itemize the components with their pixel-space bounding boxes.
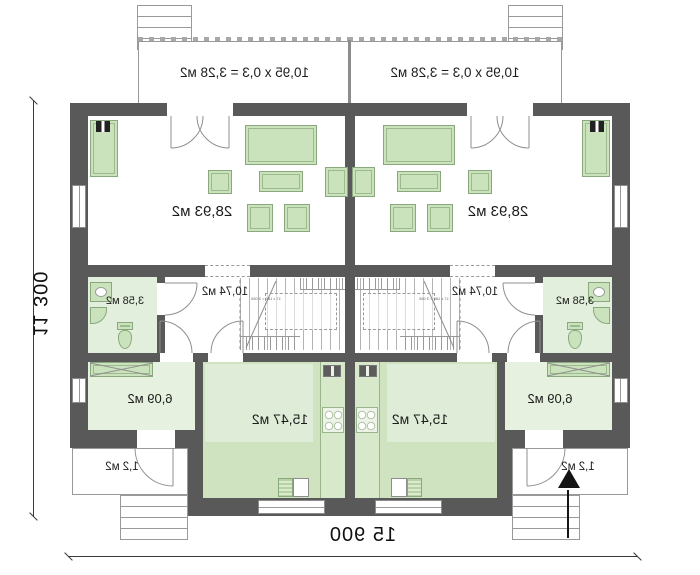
terrace-door-opening: [167, 103, 233, 116]
unit-right: 10,95 x 0,3 = 3,28 м2: [347, 0, 630, 575]
kitchen-door-opening: [457, 353, 492, 362]
kitchen-label: 15,47 м2: [215, 411, 345, 427]
unit-left: 10,95 x 0,3 = 3,28 м2: [70, 0, 353, 575]
entry-arrow-line: [567, 490, 569, 538]
porch-label: 1,2 м2: [538, 461, 618, 473]
sink-symbol: [323, 365, 341, 377]
terrace: 10,95 x 0,3 = 3,28 м2: [349, 42, 562, 103]
fridge-symbol: [391, 478, 407, 497]
bathroom-label: 3,58 м2: [90, 295, 160, 307]
bathroom-label: 3,58 м2: [540, 295, 610, 307]
terrace-divider: [348, 40, 351, 103]
riser-row: [300, 278, 345, 290]
sofa-symbol: [383, 125, 455, 165]
terrace: 10,95 x 0,3 = 3,28 м2: [138, 42, 351, 103]
sofa-symbol: [245, 125, 317, 165]
kitchen-label: 15,47 м2: [355, 411, 485, 427]
dimension-line: [68, 556, 637, 557]
fridge-symbol: [293, 478, 309, 497]
porch-door-opening: [525, 430, 563, 448]
window-living: [614, 185, 628, 228]
entry-steps-symbol: [120, 495, 188, 540]
opening-living-hall: [450, 265, 495, 277]
wardrobe-symbol: [547, 362, 610, 377]
terrace-door-opening: [467, 103, 533, 116]
floor-plan: 10,95 x 0,3 = 3,28 м2: [0, 0, 700, 575]
porch-door-opening: [137, 430, 175, 448]
wall-bottom-room: [497, 430, 630, 448]
armchair-symbol: [208, 170, 232, 194]
armchair-symbol: [352, 167, 375, 197]
porch-label: 1,2 м2: [82, 461, 162, 473]
room-label: 6,09 м2: [505, 391, 595, 406]
riser-row: [355, 278, 400, 290]
kitchen-floor-inner: [387, 364, 495, 442]
window-living: [72, 185, 86, 228]
wall-party: [348, 103, 355, 516]
pouf-symbol: [390, 204, 416, 232]
toilet-tank-symbol: [567, 322, 583, 330]
tv-symbol: [96, 121, 110, 132]
toilet-tank-symbol: [117, 322, 133, 330]
wall-kitchen-west: [497, 448, 512, 498]
wall-kitchen-west: [188, 448, 203, 498]
kitchen-floor-inner: [205, 364, 313, 442]
coffee-table-symbol: [397, 171, 441, 192]
window-kitchen: [375, 500, 442, 514]
stairs-note: 17 x 180 = 3 060: [412, 296, 456, 301]
living-label: 28,93 м2: [147, 203, 257, 220]
room-door-opening: [160, 353, 193, 362]
entry-steps-symbol: [512, 495, 580, 540]
cabinet-symbol: [407, 478, 422, 497]
opening-living-hall: [205, 265, 250, 277]
window-room: [72, 378, 86, 403]
stairs-note: 17 x 180 = 3 060: [244, 296, 288, 301]
terrace-label: 10,95 x 0,3 = 3,28 м2: [391, 65, 520, 80]
tv-symbol: [590, 121, 604, 132]
sink-symbol: [359, 365, 377, 377]
room-label: 6,09 м2: [105, 391, 195, 406]
coffee-table-symbol: [259, 171, 303, 192]
window-room: [614, 378, 628, 403]
riser-row: [400, 336, 460, 350]
cabinet-symbol: [278, 478, 293, 497]
room-door-opening: [507, 353, 540, 362]
window-kitchen: [258, 500, 325, 514]
kitchen-door-opening: [208, 353, 243, 362]
wardrobe-symbol: [90, 362, 153, 377]
terrace-label: 10,95 x 0,3 = 3,28 м2: [180, 65, 309, 80]
living-label: 28,93 м2: [443, 203, 553, 220]
riser-row: [240, 336, 300, 350]
width-dimension-label: 15 900: [300, 524, 425, 547]
wall-room-kitchen: [195, 362, 203, 430]
armchair-symbol: [468, 170, 492, 194]
wall-room-kitchen: [497, 362, 505, 430]
armchair-symbol: [325, 167, 348, 197]
pouf-symbol: [284, 204, 310, 232]
height-dimension-label: 11 300: [28, 264, 51, 344]
